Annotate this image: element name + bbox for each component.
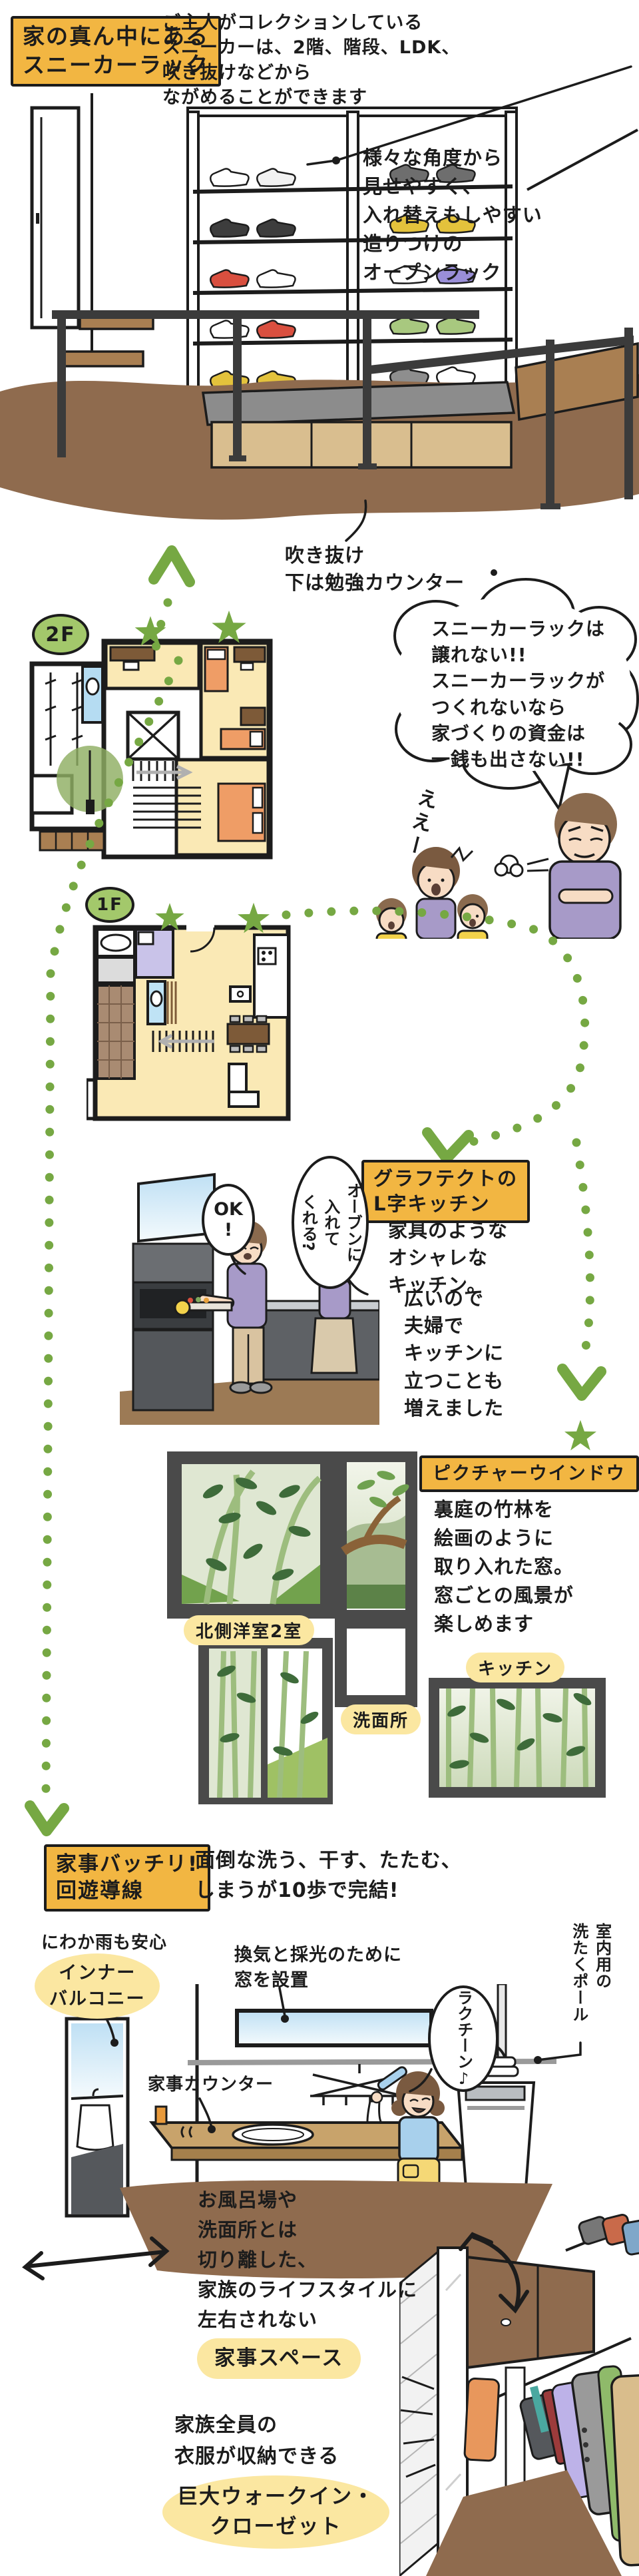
void-note-text: 吹き抜け 下は勉強カウンター — [285, 542, 465, 597]
ok-speech-bubble: OK ! — [202, 1184, 255, 1256]
home-tour-illustration: スニーカーラックは 譲れない!! スニーカーラックが つくれないなら 家づくりの… — [0, 0, 639, 2576]
kitchen-body2-text: 広いので 夫婦で キッチンに 立つことも 増えました — [404, 1285, 504, 1422]
label-north-rooms: 北側洋室2室 — [184, 1615, 314, 1645]
easy-speech-bubble: ラクチーン♪ — [428, 1985, 499, 2092]
floor-badge-1f: 1F — [85, 887, 134, 923]
folded-clothes-shelf — [578, 2214, 639, 2255]
laundry-lead-text: 面倒な洗う、干す、たたむ、 しまうが10歩で完結! — [195, 1846, 462, 1906]
closet-highlight: 巨大ウォークイン・ クローゼット — [162, 2475, 389, 2549]
closet-note-text: 家族全員の 衣服が収納できる — [174, 2410, 339, 2472]
picture-window-body-text: 裏庭の竹林を 絵画のように 取り入れた窓。 窓ごとの風景が 楽しめます — [434, 1495, 574, 1639]
arrow-up — [154, 551, 190, 582]
section-title-picture-window: ピクチャーウインドウ — [419, 1455, 639, 1492]
inner-balcony — [67, 2019, 128, 2216]
sneaker-intro-text: ご主人がコレクションしている スニーカーは、2階、階段、LDK、 吹き抜けなどか… — [162, 11, 460, 110]
arrow-down-laundry — [30, 1806, 64, 1831]
floor-badge-2f: 2F — [32, 614, 89, 655]
dotted-trail-right-1 — [286, 911, 585, 1143]
arrow-down-window — [562, 1369, 601, 1396]
arrow-down-kitchen — [427, 1133, 469, 1159]
label-kitchen-window: キッチン — [466, 1653, 564, 1682]
section-title-laundry: 家事バッチリ! 回遊導線 — [44, 1844, 210, 1912]
balcony-label: インナー バルコニー — [35, 1953, 160, 2019]
balcony-note-text: にわか雨も安心 — [41, 1931, 167, 1955]
study-counter — [203, 382, 514, 467]
window-washroom — [341, 1456, 411, 1701]
overhead-cabinet — [467, 2257, 594, 2368]
basin — [233, 2125, 313, 2145]
vent-window-note-text: 換気と採光のために 窓を設置 — [234, 1943, 402, 1994]
window-bedroom-2 — [204, 1643, 327, 1803]
closet-scene — [399, 2210, 639, 2576]
huff-puff — [495, 856, 523, 876]
ask-speech-bubble: オーブンに 入れて くれる? — [292, 1156, 369, 1289]
dad-speech-bubble-text: スニーカーラックは 譲れない!! スニーカーラックが つくれないなら 家づくりの… — [431, 616, 605, 772]
door — [32, 108, 79, 328]
pole-label-text: 室内用の 洗たくポール — [567, 1923, 614, 2056]
sneaker-rack-scene — [0, 80, 639, 546]
laundry-window — [237, 2011, 431, 2045]
floorplan-1f — [87, 892, 300, 1132]
mom-figure — [412, 847, 460, 939]
section-title-kitchen: グラフテクトの L字キッチン — [361, 1160, 530, 1223]
window-north-rooms — [174, 1457, 327, 1611]
counter-label-text: 家事カウンター — [148, 2073, 274, 2097]
dotted-trail-right-2 — [576, 1143, 590, 1358]
laundry-space-highlight: 家事スペース — [197, 2338, 361, 2379]
dad-figure — [550, 793, 620, 939]
window-kitchen — [434, 1683, 600, 1792]
oven-mitt — [175, 1300, 190, 1315]
rack-note-text: 様々な角度から 見せやすく、 入れ替えもしやすい 造りつけの オープンラック — [363, 144, 542, 287]
detergent-bottle — [156, 2107, 166, 2124]
label-washroom: 洗面所 — [341, 1704, 421, 1734]
laundry-space-note-text: お風呂場や 洗面所とは 切り離した、 家族のライフスタイルに 左右されない — [198, 2185, 417, 2335]
